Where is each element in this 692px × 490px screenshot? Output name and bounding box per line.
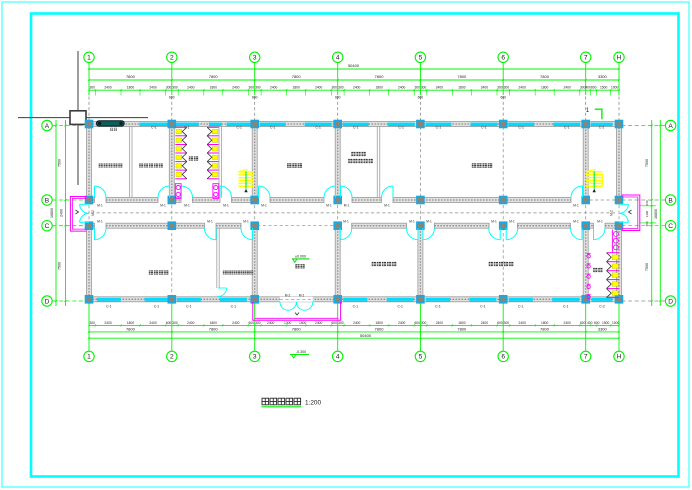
svg-text:600: 600	[331, 321, 337, 325]
svg-text:7800: 7800	[540, 327, 550, 332]
svg-text:400: 400	[587, 321, 593, 325]
svg-text:2400: 2400	[353, 85, 361, 89]
svg-text:C-1: C-1	[270, 125, 276, 129]
svg-text:2400: 2400	[519, 85, 527, 89]
svg-text:2400: 2400	[187, 321, 195, 325]
svg-text:7500: 7500	[58, 262, 62, 270]
svg-text:1800: 1800	[293, 85, 301, 89]
svg-text:640: 640	[645, 200, 649, 205]
svg-text:1800: 1800	[541, 321, 549, 325]
svg-text:300: 300	[172, 85, 178, 89]
svg-text:2400: 2400	[481, 85, 489, 89]
svg-text:M-1: M-1	[207, 219, 213, 223]
svg-text:1800: 1800	[376, 321, 384, 325]
svg-text:B: B	[668, 197, 673, 204]
svg-text:2400: 2400	[519, 321, 527, 325]
svg-text:1800: 1800	[210, 321, 218, 325]
svg-text:1800: 1800	[127, 85, 135, 89]
svg-text:C-1: C-1	[154, 304, 160, 308]
svg-text:7800: 7800	[540, 74, 550, 79]
svg-text:7800: 7800	[375, 327, 385, 332]
svg-text:M-1: M-1	[509, 219, 515, 223]
svg-text:-0.300: -0.300	[296, 350, 306, 354]
svg-text:300: 300	[166, 85, 172, 89]
svg-text:D: D	[668, 298, 673, 305]
svg-text:6: 6	[501, 55, 505, 62]
svg-text:2400: 2400	[232, 85, 240, 89]
svg-text:7800: 7800	[375, 74, 385, 79]
svg-text:2400: 2400	[232, 321, 240, 325]
svg-text:±0.000: ±0.000	[295, 255, 306, 259]
svg-text:2400: 2400	[104, 321, 112, 325]
svg-text:600: 600	[594, 321, 600, 325]
svg-text:5: 5	[419, 354, 423, 361]
svg-text:1: 1	[87, 55, 91, 62]
svg-text:600: 600	[166, 321, 172, 325]
svg-text:M-1: M-1	[97, 204, 103, 208]
svg-text:1500: 1500	[600, 85, 608, 89]
svg-text:300: 300	[89, 85, 95, 89]
svg-text:7800: 7800	[292, 327, 302, 332]
svg-text:M-2: M-2	[610, 210, 614, 216]
svg-text:C-1: C-1	[315, 125, 321, 129]
svg-text:C-1: C-1	[236, 125, 242, 129]
svg-text:7800: 7800	[126, 74, 136, 79]
svg-text:C-1: C-1	[186, 304, 192, 308]
svg-text:M-2: M-2	[299, 294, 305, 298]
svg-text:4: 4	[336, 354, 340, 361]
svg-text:C-1: C-1	[353, 125, 359, 129]
svg-text:A: A	[45, 123, 50, 130]
svg-text:16800: 16800	[654, 209, 658, 219]
svg-text:2400: 2400	[436, 85, 444, 89]
svg-text:300: 300	[331, 85, 337, 89]
svg-text:600: 600	[497, 321, 503, 325]
svg-text:2400: 2400	[398, 85, 406, 89]
svg-text:C-1: C-1	[435, 304, 441, 308]
svg-text:300: 300	[421, 85, 427, 89]
svg-text:2400: 2400	[187, 85, 195, 89]
svg-text:C-2: C-2	[599, 304, 605, 308]
svg-text:B: B	[45, 197, 50, 204]
svg-text:2400: 2400	[149, 85, 157, 89]
svg-text:2400: 2400	[398, 321, 406, 325]
svg-text:C: C	[668, 223, 673, 230]
svg-text:C-1: C-1	[563, 304, 569, 308]
svg-text:4: 4	[336, 55, 340, 62]
svg-text:2400: 2400	[149, 321, 157, 325]
svg-text:M-2: M-2	[285, 294, 291, 298]
svg-text:2400: 2400	[270, 85, 278, 89]
svg-text:600: 600	[500, 96, 506, 100]
svg-text:C-1: C-1	[436, 125, 442, 129]
svg-text:2: 2	[170, 55, 174, 62]
svg-text:C-1: C-1	[353, 304, 359, 308]
svg-text:2400: 2400	[315, 321, 323, 325]
svg-text:1800: 1800	[541, 85, 549, 89]
svg-text:M-1: M-1	[344, 204, 350, 208]
svg-text:M-1: M-1	[573, 204, 579, 208]
svg-text:C-1: C-1	[481, 125, 487, 129]
svg-text:M-1: M-1	[573, 219, 579, 223]
svg-text:300: 300	[414, 85, 420, 89]
svg-text:7800: 7800	[457, 74, 467, 79]
svg-text:600: 600	[249, 321, 255, 325]
svg-text:300: 300	[504, 321, 510, 325]
svg-text:1800: 1800	[210, 85, 218, 89]
svg-text:C-1: C-1	[480, 304, 486, 308]
svg-text:1000: 1000	[611, 85, 619, 89]
svg-text:300: 300	[172, 321, 178, 325]
svg-text:H: H	[617, 354, 622, 361]
svg-text:7800: 7800	[209, 327, 219, 332]
svg-text:7500: 7500	[58, 159, 62, 167]
svg-text:300: 300	[421, 321, 427, 325]
svg-text:7800: 7800	[292, 74, 302, 79]
svg-text:2400: 2400	[315, 85, 323, 89]
svg-text:50400: 50400	[360, 333, 372, 338]
svg-text:2400: 2400	[104, 85, 112, 89]
svg-text:M-1: M-1	[97, 219, 103, 223]
svg-text:16800: 16800	[50, 208, 54, 218]
svg-text:7: 7	[584, 354, 588, 361]
svg-text:3300: 3300	[598, 74, 608, 79]
svg-text:C-1: C-1	[518, 125, 524, 129]
svg-text:600: 600	[252, 96, 258, 100]
svg-text:1: 1	[87, 354, 91, 361]
svg-text:D: D	[45, 298, 50, 305]
svg-text:1800: 1800	[458, 85, 466, 89]
svg-text:300: 300	[497, 85, 503, 89]
svg-text:3: 3	[253, 354, 257, 361]
svg-text:M-1: M-1	[326, 204, 332, 208]
svg-text:600: 600	[335, 96, 341, 100]
svg-text:300: 300	[338, 321, 344, 325]
svg-text:600: 600	[418, 96, 424, 100]
svg-text:600: 600	[580, 321, 586, 325]
svg-text:1800: 1800	[458, 321, 466, 325]
svg-text:C-1: C-1	[518, 304, 524, 308]
svg-text:1000: 1000	[612, 321, 620, 325]
svg-text:300: 300	[255, 321, 261, 325]
svg-text:3300: 3300	[598, 327, 608, 332]
svg-text:1500: 1500	[299, 321, 307, 325]
svg-text:3: 3	[253, 55, 257, 62]
svg-text:1300: 1300	[645, 210, 649, 217]
svg-text:M-1: M-1	[491, 219, 497, 223]
svg-text:M-2: M-2	[91, 210, 95, 216]
svg-text:M-1: M-1	[223, 204, 229, 208]
svg-text:2: 2	[170, 354, 174, 361]
svg-text:300: 300	[255, 85, 261, 89]
svg-text:600: 600	[591, 85, 597, 89]
svg-text:6: 6	[501, 354, 505, 361]
svg-text:C-1: C-1	[106, 304, 112, 308]
svg-text:7800: 7800	[209, 74, 219, 79]
svg-text:H: H	[617, 55, 622, 62]
svg-text:2400: 2400	[60, 209, 64, 217]
svg-text:7: 7	[584, 55, 588, 62]
svg-text:M-1: M-1	[426, 219, 432, 223]
svg-text:600: 600	[414, 321, 420, 325]
svg-text:300: 300	[504, 85, 510, 89]
svg-text:7500: 7500	[645, 159, 649, 167]
svg-text:1800: 1800	[127, 321, 135, 325]
svg-text:50400: 50400	[348, 63, 360, 68]
svg-text:1:200: 1:200	[305, 400, 321, 407]
svg-text:M-1: M-1	[343, 219, 349, 223]
svg-text:7800: 7800	[457, 327, 467, 332]
svg-text:M-1: M-1	[384, 204, 390, 208]
svg-text:2400: 2400	[564, 85, 572, 89]
svg-text:M-1: M-1	[261, 204, 267, 208]
svg-text:460: 460	[645, 221, 649, 226]
svg-text:1500: 1500	[602, 321, 610, 325]
svg-text:A: A	[668, 123, 673, 130]
svg-text:M-1: M-1	[160, 204, 166, 208]
svg-text:7500: 7500	[645, 263, 649, 271]
svg-text:M-1: M-1	[184, 204, 190, 208]
svg-text:2400: 2400	[353, 321, 361, 325]
svg-text:M-1: M-1	[243, 219, 249, 223]
svg-text:5: 5	[419, 55, 423, 62]
svg-text:1800: 1800	[376, 85, 384, 89]
svg-text:C-1: C-1	[231, 304, 237, 308]
svg-text:300: 300	[89, 321, 95, 325]
svg-text:M-1: M-1	[597, 219, 603, 223]
svg-text:1300: 1300	[284, 321, 292, 325]
svg-text:600: 600	[169, 96, 175, 100]
svg-text:M-1: M-1	[409, 219, 415, 223]
svg-text:C-1: C-1	[151, 125, 157, 129]
svg-text:300: 300	[249, 85, 255, 89]
svg-text:C: C	[45, 223, 50, 230]
svg-text:2400: 2400	[564, 321, 572, 325]
svg-text:C-1: C-1	[398, 125, 404, 129]
svg-text:2400: 2400	[436, 321, 444, 325]
svg-text:2400: 2400	[267, 321, 275, 325]
svg-text:C-1: C-1	[397, 304, 403, 308]
svg-text:C-1: C-1	[564, 125, 570, 129]
svg-text:2400: 2400	[481, 321, 489, 325]
svg-text:C-2: C-2	[599, 125, 605, 129]
svg-text:300: 300	[338, 85, 344, 89]
svg-text:7800: 7800	[126, 327, 136, 332]
